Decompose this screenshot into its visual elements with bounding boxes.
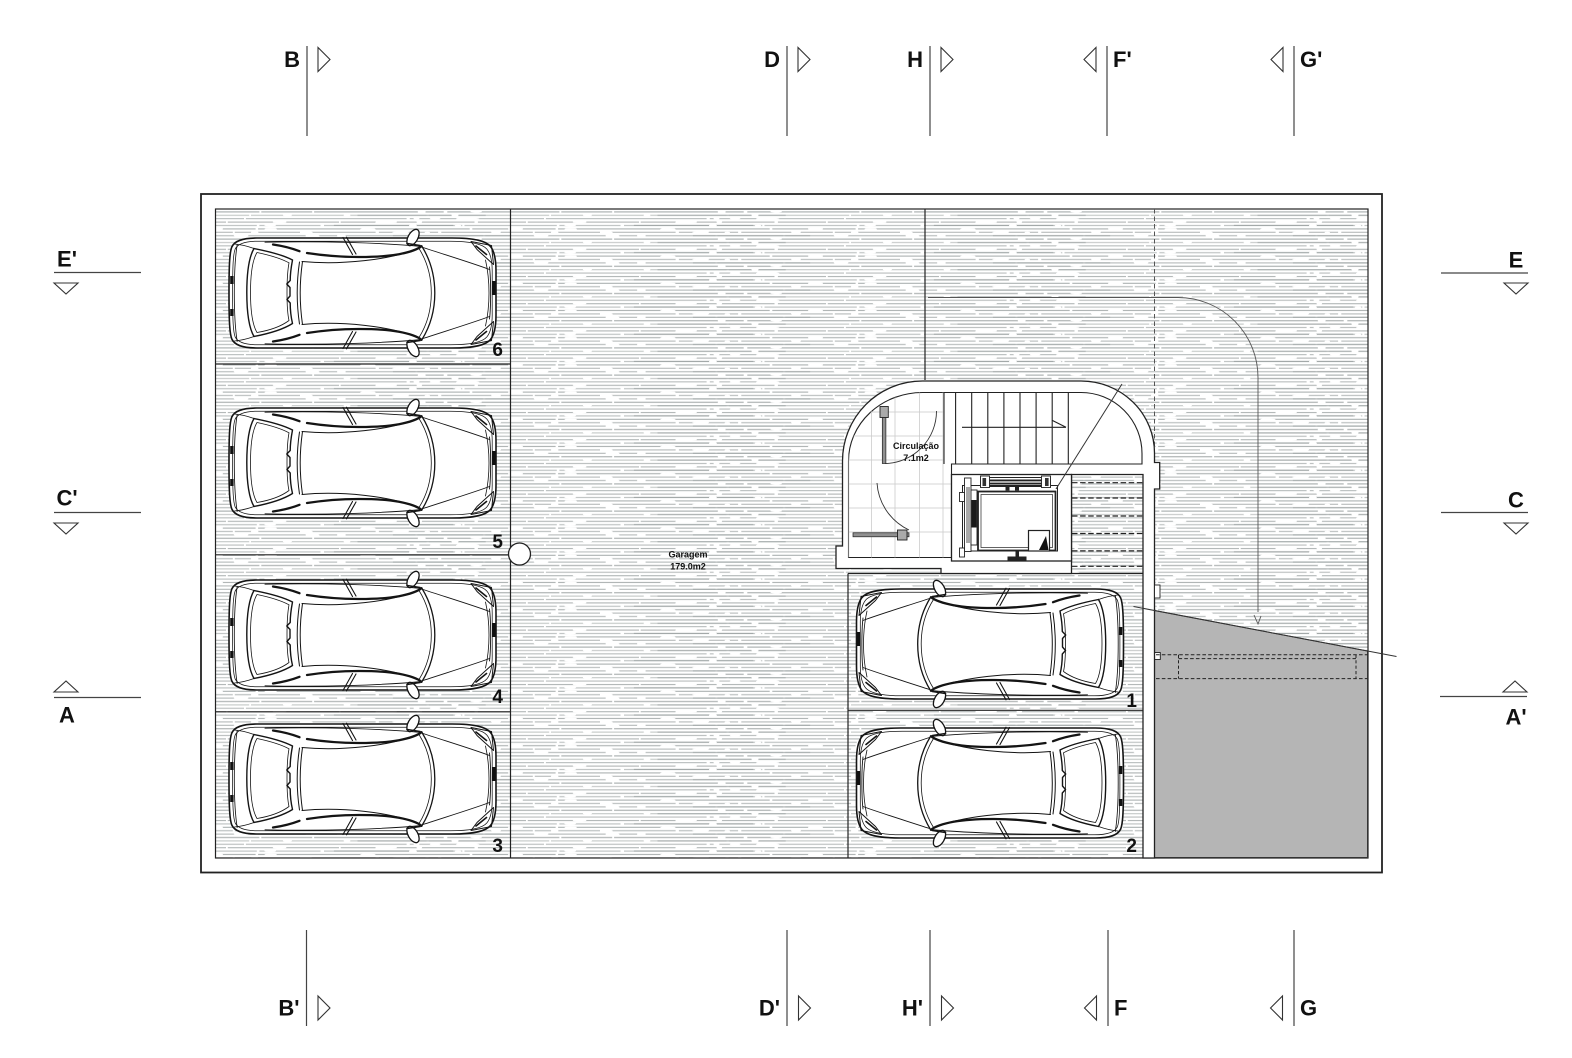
svg-text:6: 6 [492,340,503,361]
svg-text:C': C' [56,486,77,511]
svg-text:D: D [764,47,780,72]
svg-text:7.1m2: 7.1m2 [903,453,929,463]
svg-text:A': A' [1505,705,1526,730]
svg-text:C: C [1508,488,1524,513]
svg-text:E': E' [57,247,77,272]
svg-text:B': B' [278,996,299,1021]
svg-text:E: E [1509,248,1524,273]
svg-text:G': G' [1300,47,1322,72]
svg-text:3: 3 [492,836,503,857]
svg-text:A: A [59,703,75,728]
svg-text:H: H [907,47,923,72]
svg-text:F': F' [1113,47,1132,72]
svg-text:B: B [284,47,300,72]
svg-text:Circulação: Circulação [893,441,940,451]
svg-text:F: F [1114,996,1127,1021]
svg-text:H': H' [902,996,923,1021]
svg-text:1: 1 [1126,691,1137,712]
svg-text:2: 2 [1126,836,1137,857]
svg-text:4: 4 [492,687,503,708]
svg-text:5: 5 [492,532,503,553]
svg-text:Garagem: Garagem [668,550,707,560]
svg-text:179.0m2: 179.0m2 [670,562,706,572]
svg-text:D': D' [759,996,780,1021]
svg-text:G: G [1300,996,1317,1021]
